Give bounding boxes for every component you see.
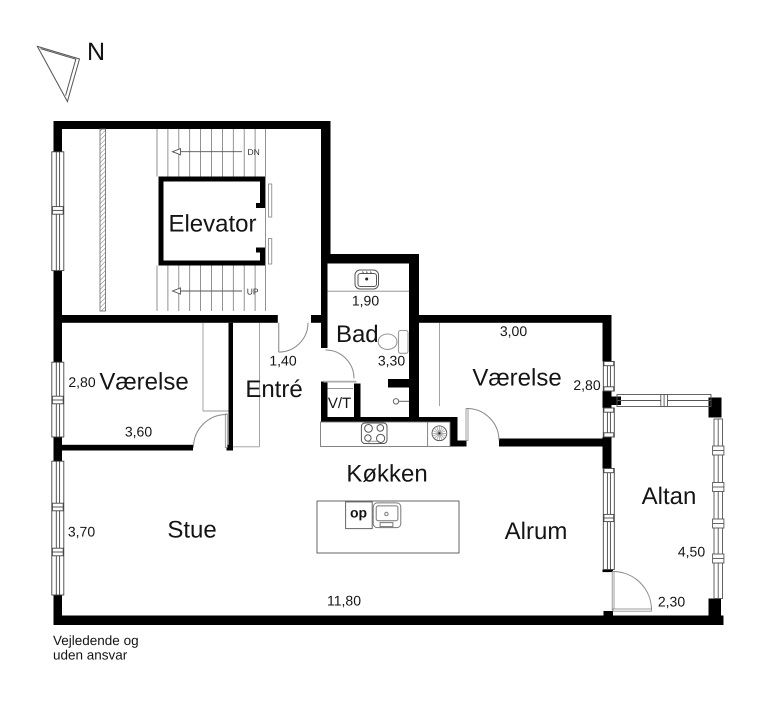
svg-text:Bad: Bad [336, 321, 379, 348]
svg-text:Altan: Altan [642, 483, 697, 510]
svg-text:DN: DN [248, 147, 260, 157]
svg-text:11,80: 11,80 [327, 593, 361, 609]
svg-text:1,90: 1,90 [352, 293, 379, 309]
svg-text:Værelse: Værelse [472, 365, 561, 392]
svg-text:1,40: 1,40 [269, 353, 296, 369]
svg-text:Elevator: Elevator [168, 211, 256, 238]
svg-text:3,70: 3,70 [68, 524, 95, 540]
svg-text:2,80: 2,80 [573, 377, 600, 393]
svg-text:Alrum: Alrum [505, 518, 568, 545]
svg-text:uden ansvar: uden ansvar [53, 648, 128, 663]
svg-text:3,30: 3,30 [378, 353, 405, 369]
svg-text:2,80: 2,80 [68, 374, 95, 390]
svg-text:Entré: Entré [245, 376, 302, 403]
svg-text:3,60: 3,60 [125, 424, 152, 440]
svg-text:Køkken: Køkken [346, 461, 427, 488]
svg-text:N: N [87, 38, 105, 66]
svg-text:2,30: 2,30 [658, 594, 685, 610]
svg-text:4,50: 4,50 [678, 544, 705, 560]
svg-text:Vejledende og: Vejledende og [53, 633, 139, 648]
svg-text:Værelse: Værelse [99, 369, 188, 396]
svg-text:UP: UP [247, 286, 259, 296]
svg-text:Stue: Stue [167, 517, 216, 544]
svg-text:3,00: 3,00 [500, 323, 527, 339]
svg-text:op: op [350, 505, 367, 521]
svg-text:V/T: V/T [328, 395, 351, 412]
